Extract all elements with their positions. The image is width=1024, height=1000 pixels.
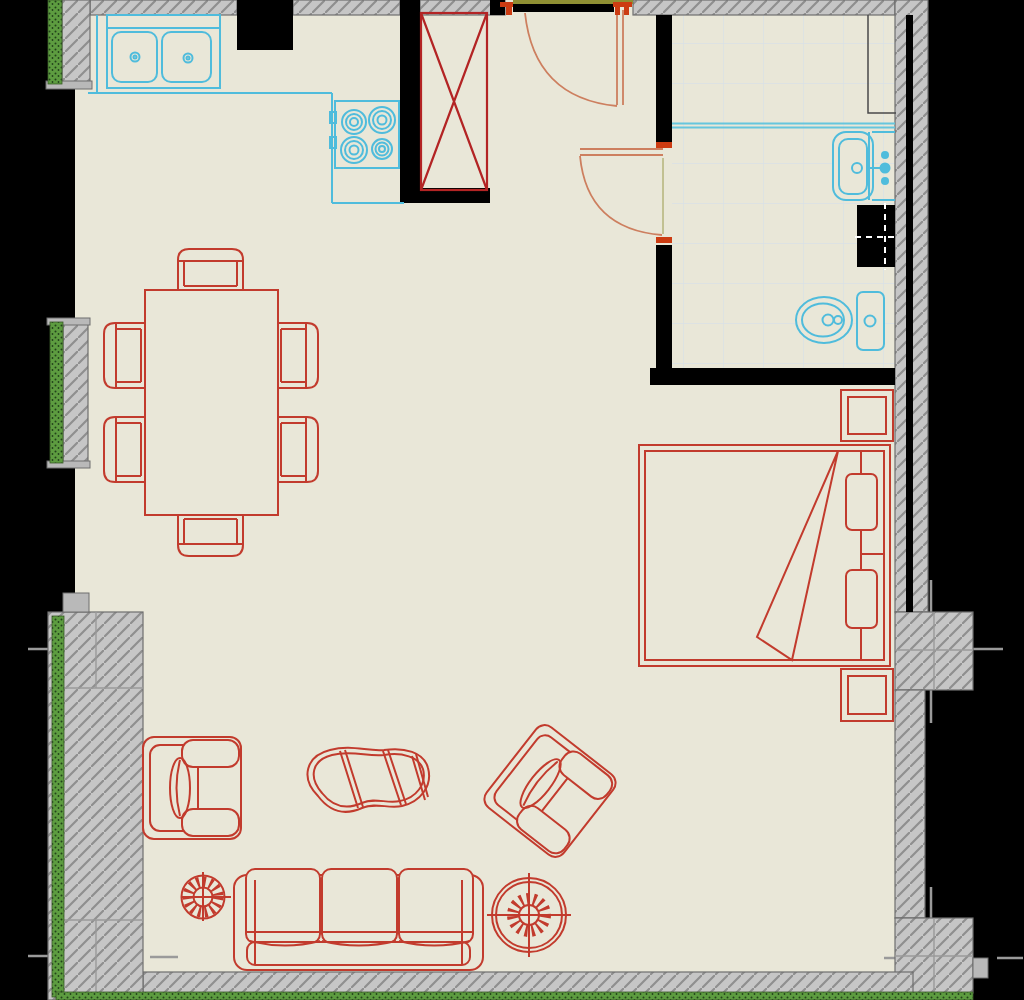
window-left-middle xyxy=(50,322,63,463)
floor-plan-drawing xyxy=(0,0,1024,1000)
top-wall-segment-2 xyxy=(293,0,400,15)
left-wall-top-block xyxy=(62,0,90,86)
window-bottom xyxy=(56,992,973,1000)
top-wall-segment-1 xyxy=(90,0,237,15)
window-left-lower xyxy=(52,616,64,997)
kitchen-column xyxy=(237,0,293,50)
right-wall-lower xyxy=(895,690,925,918)
left-window-mid-block xyxy=(63,322,88,464)
bathroom-wall-lower xyxy=(656,245,672,385)
bed xyxy=(639,445,890,666)
armchair-left xyxy=(143,737,241,839)
closet-left-wall xyxy=(400,0,420,203)
right-wall-inner-line xyxy=(906,15,913,612)
bottom-wall xyxy=(143,972,913,993)
bathroom-wall-upper xyxy=(656,15,672,145)
bed-pillow-1 xyxy=(846,474,877,530)
sofa-three-seat xyxy=(234,869,483,970)
top-wall-segment-4 xyxy=(633,0,895,15)
dining-table xyxy=(145,290,278,515)
window-left-top xyxy=(48,0,62,84)
left-wall-block xyxy=(63,593,89,612)
bed-pillow-2 xyxy=(846,570,877,628)
bathroom-bottom-wall xyxy=(650,368,895,385)
entry-lintel xyxy=(513,4,614,12)
right-wall-tab xyxy=(973,958,988,978)
floor-plan-page xyxy=(0,0,1024,1000)
